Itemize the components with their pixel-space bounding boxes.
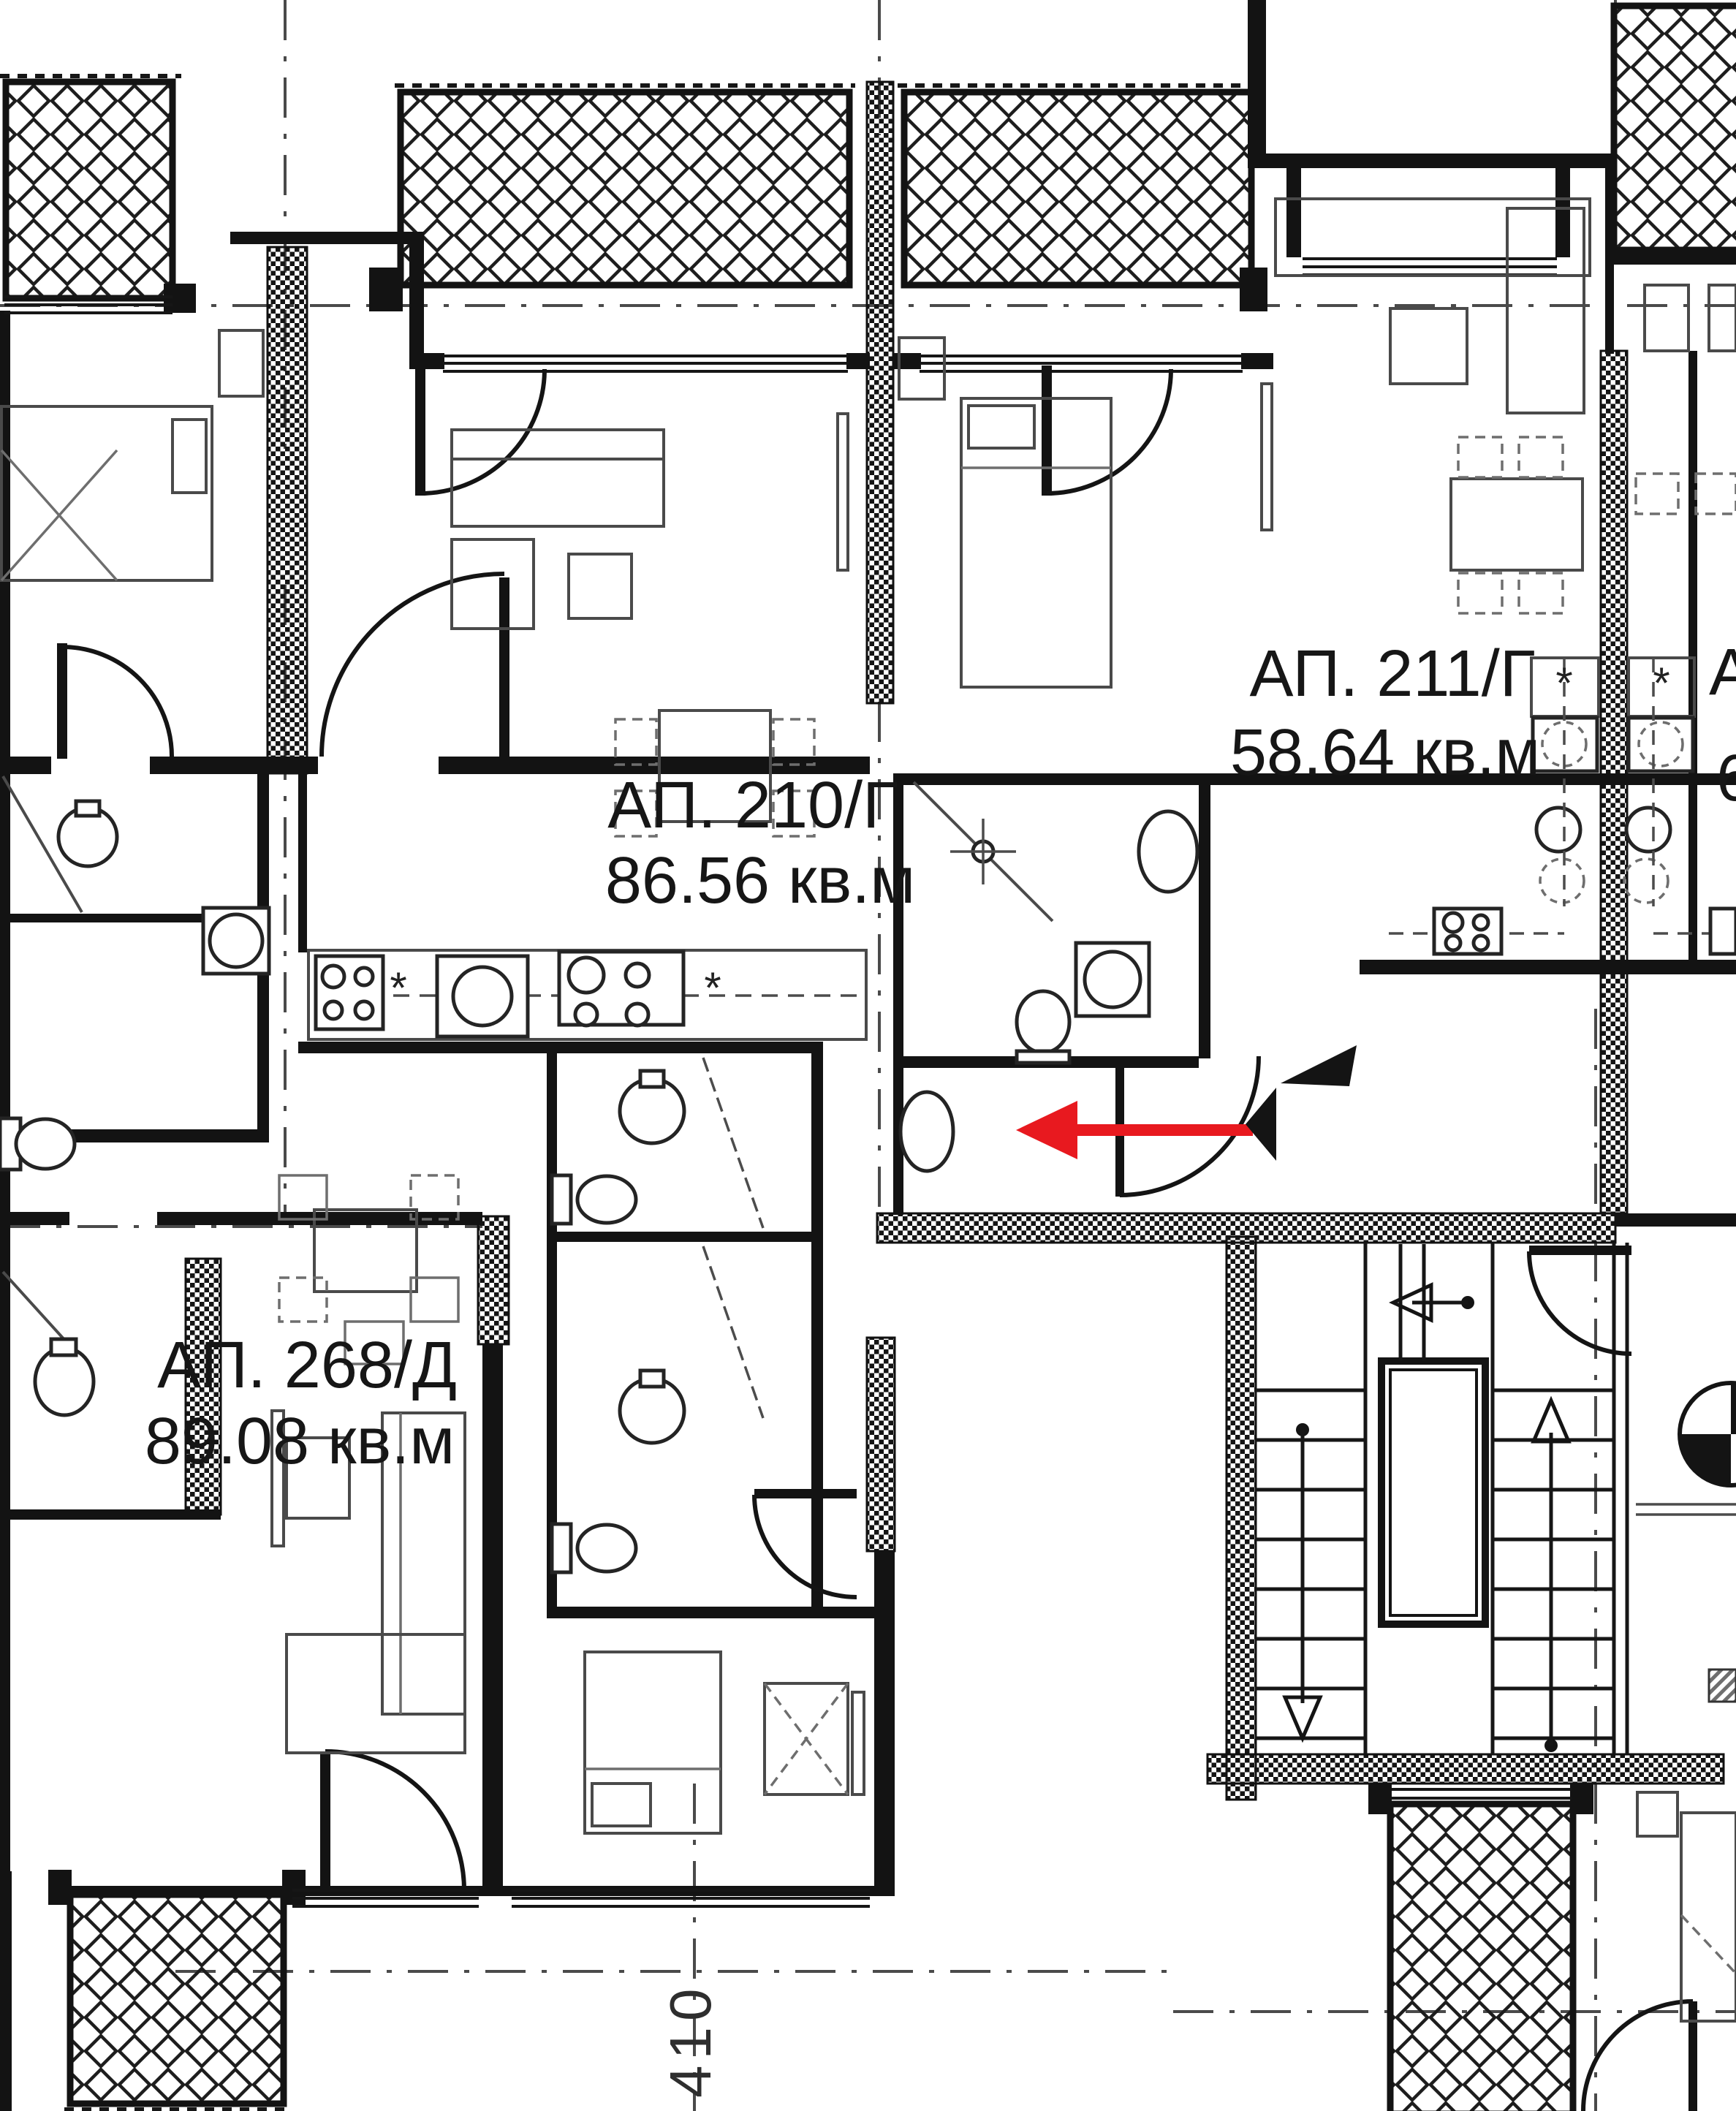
window-stair-balcony	[1392, 1789, 1572, 1798]
stove-ap210	[559, 952, 683, 1026]
entrance-arrow-shaft	[1069, 1124, 1253, 1136]
sofa-ap211	[1262, 199, 1590, 530]
kitchen-star-3: *	[1555, 659, 1572, 708]
stair-treads-left	[1256, 1390, 1365, 1738]
bathroom-ap268	[3, 1272, 94, 1415]
sink-ap210	[437, 956, 528, 1036]
wardrobe-bottom-wing	[765, 1683, 848, 1794]
entrance-arrow-head	[1016, 1101, 1077, 1159]
balcony-top-right	[1614, 6, 1736, 250]
bathroom-ap211	[914, 782, 1197, 1063]
label-ap210-area: 86.56 кв.м	[605, 844, 915, 917]
bathroom-center-1	[552, 1071, 684, 1224]
label-ap268-name: АП. 268/Д	[157, 1329, 457, 1402]
label-ap268-area: 89.08 кв.м	[145, 1405, 455, 1478]
balcony-top-left	[0, 76, 196, 313]
balcony-bottom-right	[1368, 1784, 1593, 2111]
stair-landing	[1381, 1361, 1485, 1624]
corridor-sink	[901, 1092, 953, 1171]
door-bathroom-sliding-1	[703, 1058, 763, 1228]
door-bottom-wing-bedroom	[754, 1489, 857, 1597]
window-ap211	[920, 356, 1243, 371]
floorplan-canvas: АП. 210/Г 86.56 кв.м АП. 211/Г 58.64 кв.…	[0, 0, 1736, 2111]
bed-ap211	[899, 338, 1111, 687]
burner-unit-left	[316, 956, 383, 1029]
balcony-ap211	[898, 86, 1267, 311]
label-axis-410: 410	[658, 1983, 723, 2098]
label-right-partial-1: А	[1709, 636, 1736, 709]
door-ap211-balcony	[1042, 365, 1171, 496]
washing-machine-left	[203, 908, 269, 974]
door-stairwell	[1529, 1246, 1631, 1354]
furniture-right-apartment	[1624, 285, 1736, 954]
furniture-left-apartment	[1, 330, 263, 580]
stairwell	[1256, 1243, 1614, 1754]
kitchen-star-4: *	[1653, 659, 1669, 708]
furniture-bottom-wing	[585, 1652, 864, 1833]
bathroom-left-column	[0, 776, 269, 1170]
door-ap210-entry	[322, 574, 509, 759]
door-bathroom-sliding-2	[703, 1246, 763, 1418]
kitchen-star-2: *	[390, 963, 406, 1012]
door-ap268-balcony	[320, 1751, 464, 1890]
balcony-ap210	[369, 86, 855, 311]
washing-machine-ap211	[1076, 943, 1149, 1016]
balcony-ap268	[48, 1870, 306, 2110]
label-ap211-name: АП. 211/Г	[1250, 637, 1536, 710]
kitchen-star-1: *	[704, 963, 721, 1012]
window-top-right	[1303, 259, 1557, 275]
benchmark-symbol	[1680, 1383, 1736, 1485]
label-right-partial-2: 6	[1716, 742, 1736, 815]
floorplan-drawing: АП. 210/Г 86.56 кв.м АП. 211/Г 58.64 кв.…	[0, 0, 1736, 2111]
label-ap211-area: 58.64 кв.м	[1230, 716, 1540, 789]
stove-ap211	[1434, 909, 1501, 954]
direction-triangle-upper	[1281, 1045, 1357, 1086]
label-ap210-name: АП. 210/Г	[607, 769, 898, 842]
door-left-apartment	[57, 643, 172, 759]
furniture-bottom-right-room	[1637, 1792, 1736, 2021]
dining-table-ap211	[1451, 437, 1583, 613]
bathroom-center-2	[552, 1371, 684, 1572]
window-ap210	[443, 356, 848, 371]
